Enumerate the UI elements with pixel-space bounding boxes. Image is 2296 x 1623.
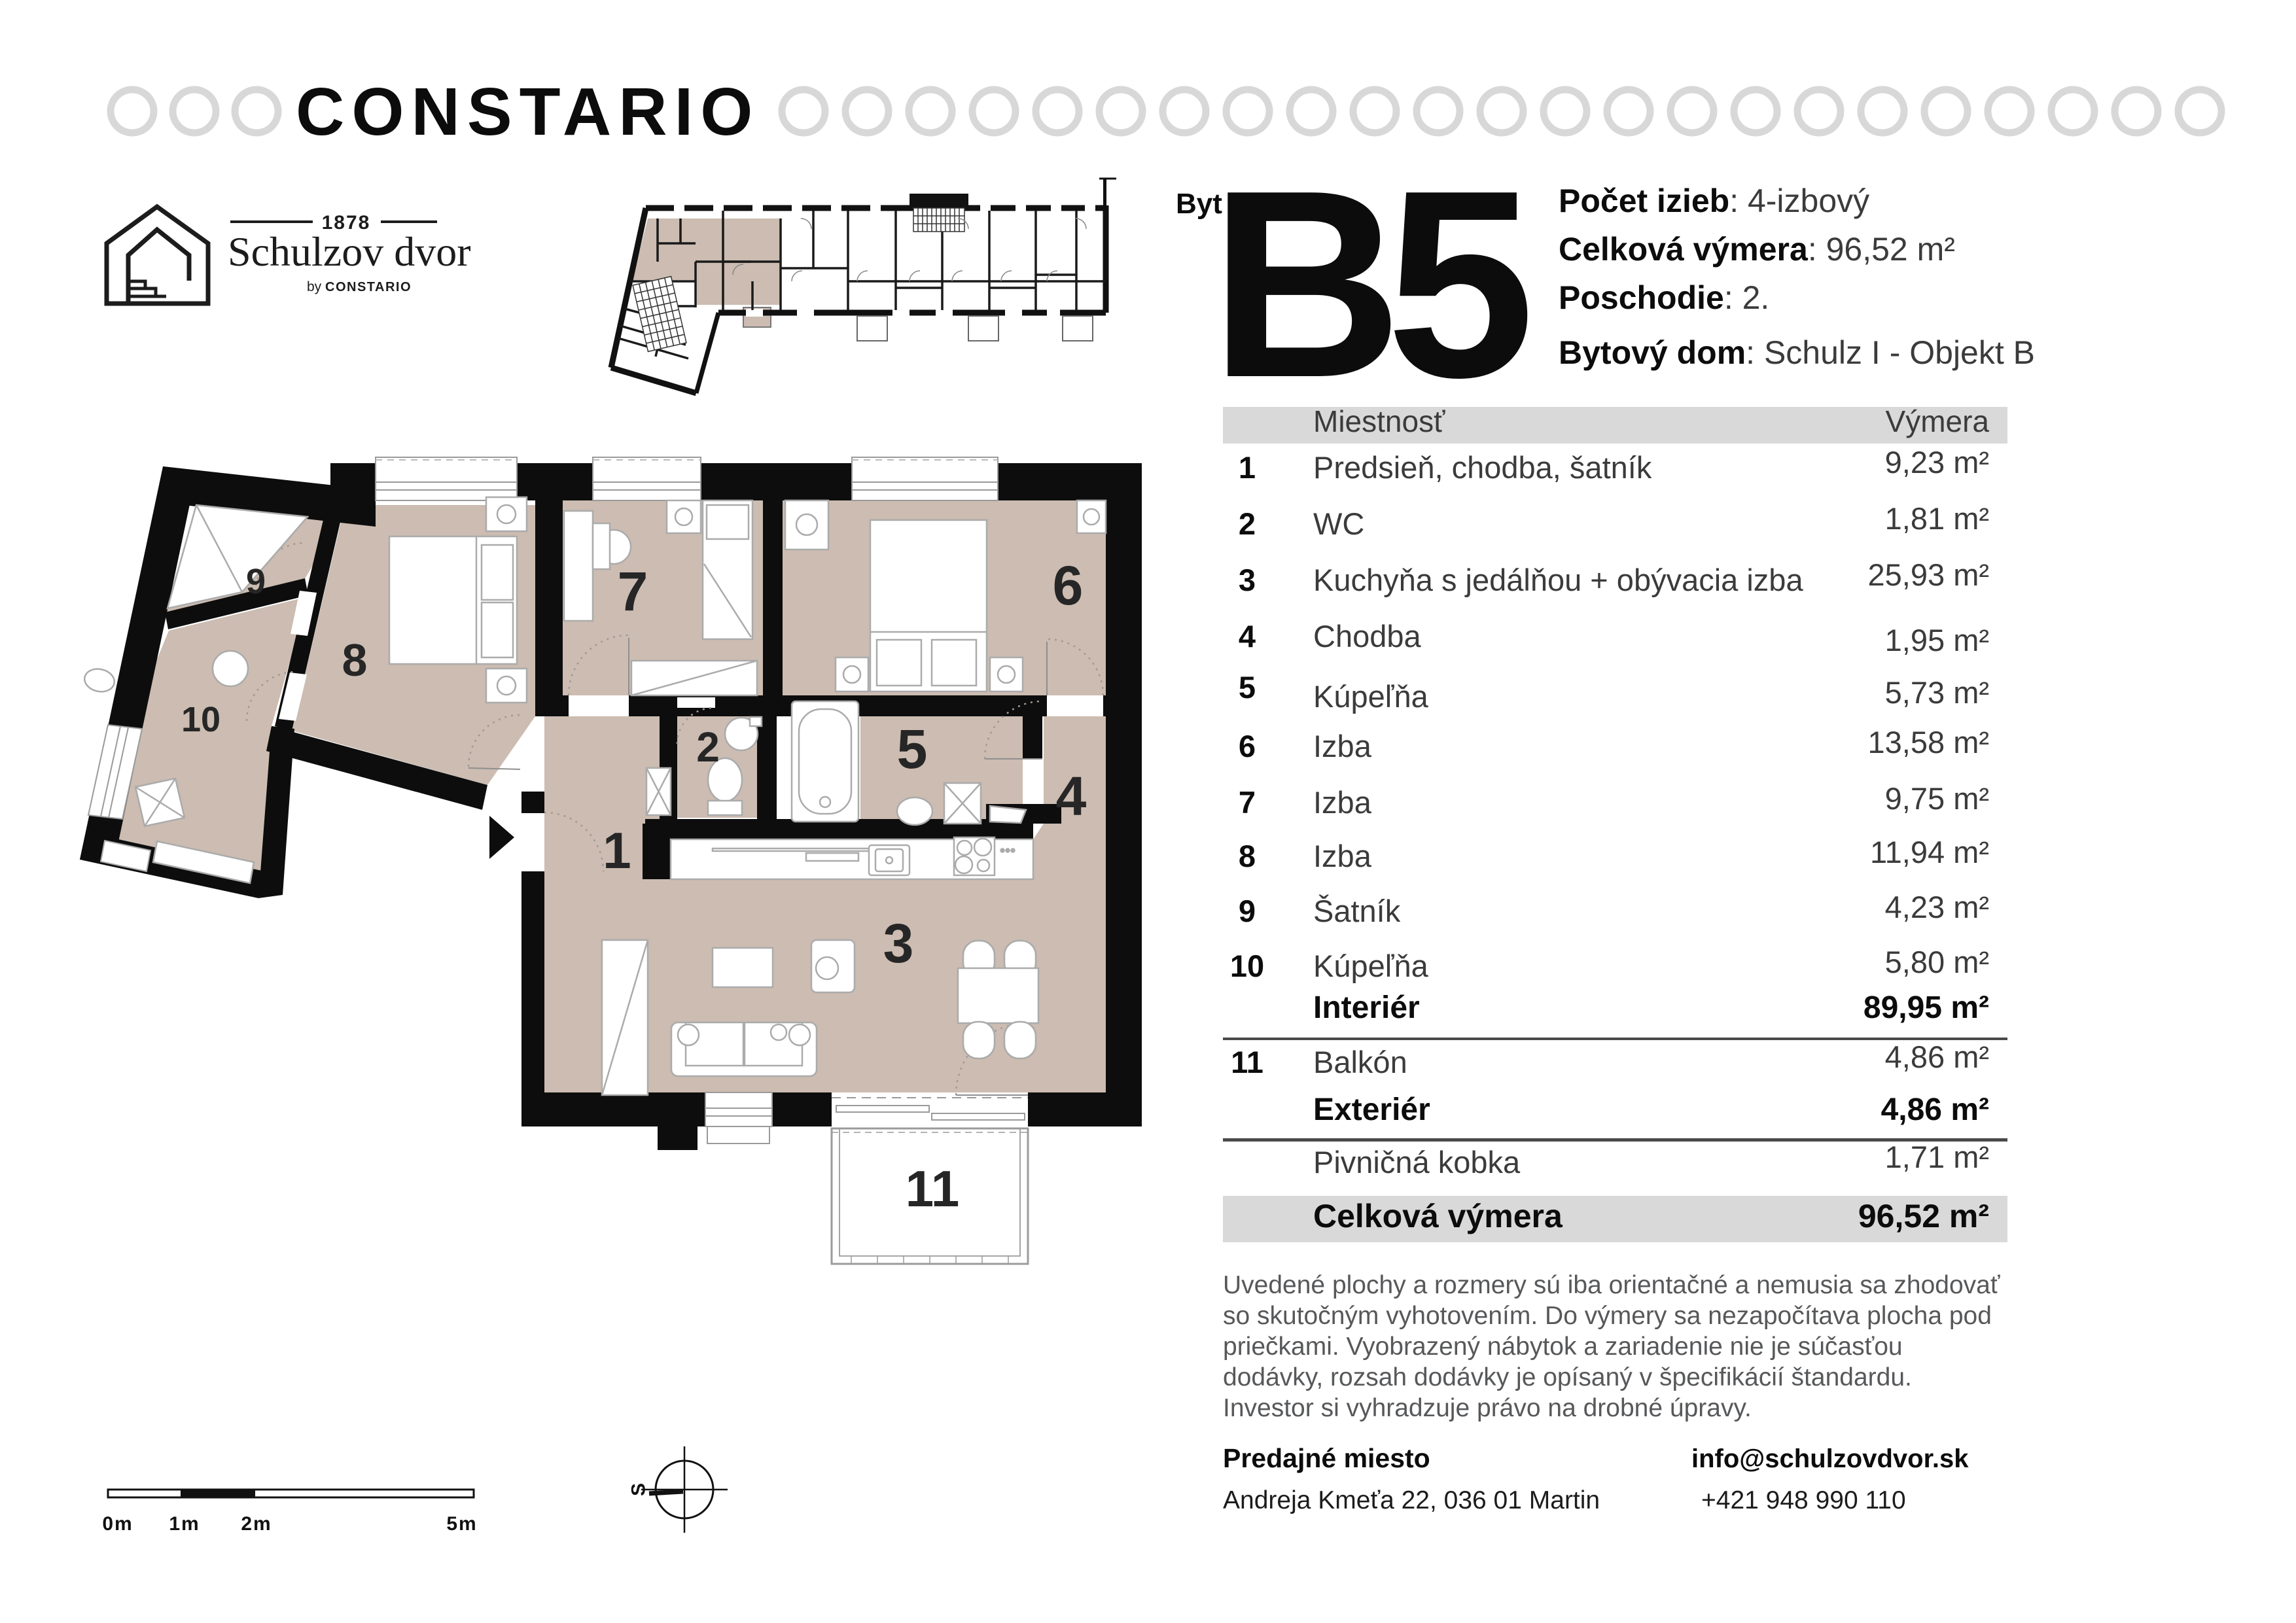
svg-text:Celková výmera: Celková výmera bbox=[1313, 1198, 1563, 1234]
svg-text:Poschodie: 2.: Poschodie: 2. bbox=[1559, 279, 1769, 316]
svg-text:Celková výmera: 96,52 m²: Celková výmera: 96,52 m² bbox=[1559, 231, 1955, 268]
svg-text:Balkón: Balkón bbox=[1313, 1045, 1407, 1079]
svg-text:8: 8 bbox=[342, 635, 368, 686]
svg-text:Investor si vyhradzuje právo n: Investor si vyhradzuje právo na drobné ú… bbox=[1223, 1394, 1752, 1422]
svg-text:7: 7 bbox=[1239, 785, 1256, 820]
svg-text:4,86 m²: 4,86 m² bbox=[1885, 1039, 1989, 1074]
svg-text:CONSTARIO: CONSTARIO bbox=[296, 74, 760, 149]
svg-text:1,71 m²: 1,71 m² bbox=[1885, 1140, 1989, 1174]
svg-text:Predsieň, chodba, šatník: Predsieň, chodba, šatník bbox=[1313, 450, 1652, 485]
svg-text:1: 1 bbox=[603, 822, 631, 879]
svg-text:dodávky, rozsah dodávky je opí: dodávky, rozsah dodávky je opísaný v špe… bbox=[1223, 1363, 1912, 1391]
svg-text:Šatník: Šatník bbox=[1313, 894, 1401, 928]
svg-text:Kuchyňa s jedálňou + obývacia: Kuchyňa s jedálňou + obývacia izba bbox=[1313, 563, 1803, 597]
svg-text:2: 2 bbox=[696, 724, 720, 771]
svg-text:11: 11 bbox=[906, 1160, 959, 1217]
svg-text:7: 7 bbox=[618, 561, 648, 622]
svg-text:5,80 m²: 5,80 m² bbox=[1885, 945, 1989, 979]
svg-text:11,94 m²: 11,94 m² bbox=[1870, 835, 1989, 869]
svg-text:3: 3 bbox=[883, 913, 914, 974]
svg-text:WC: WC bbox=[1313, 506, 1364, 541]
svg-text:Izba: Izba bbox=[1313, 839, 1372, 873]
svg-text:5,73 m²: 5,73 m² bbox=[1885, 675, 1989, 710]
svg-text:3: 3 bbox=[1239, 563, 1256, 597]
svg-text:Výmera: Výmera bbox=[1886, 404, 1990, 438]
svg-text:2: 2 bbox=[1239, 506, 1256, 541]
svg-text:Miestnosť: Miestnosť bbox=[1313, 404, 1445, 438]
svg-text:2m: 2m bbox=[241, 1513, 272, 1535]
svg-text:by CONSTARIO: by CONSTARIO bbox=[307, 279, 412, 294]
svg-text:B5: B5 bbox=[1210, 135, 1528, 433]
svg-text:8: 8 bbox=[1239, 839, 1256, 873]
svg-text:1: 1 bbox=[1239, 450, 1256, 485]
svg-text:Bytový dom: Schulz I - Objekt: Bytový dom: Schulz I - Objekt B bbox=[1559, 334, 2035, 371]
svg-text:Schulzov dvor: Schulzov dvor bbox=[228, 228, 471, 275]
svg-text:Andreja Kmeťa 22, 036 01 Marti: Andreja Kmeťa 22, 036 01 Martin bbox=[1223, 1486, 1600, 1514]
svg-text:9,75 m²: 9,75 m² bbox=[1885, 781, 1989, 816]
svg-text:4: 4 bbox=[1239, 619, 1256, 654]
svg-text:4: 4 bbox=[1056, 765, 1087, 827]
svg-text:Kúpeľňa: Kúpeľňa bbox=[1313, 949, 1429, 983]
svg-text:1m: 1m bbox=[169, 1513, 200, 1535]
svg-text:5m: 5m bbox=[446, 1513, 477, 1535]
svg-text:5: 5 bbox=[1239, 670, 1256, 705]
svg-text:S: S bbox=[628, 1483, 650, 1496]
svg-text:so skutočným vyhotovením. Do v: so skutočným vyhotovením. Do výmery sa n… bbox=[1223, 1302, 1992, 1330]
svg-text:Izba: Izba bbox=[1313, 729, 1372, 763]
svg-text:6: 6 bbox=[1053, 555, 1084, 616]
svg-text:Predajné miesto: Predajné miesto bbox=[1223, 1443, 1430, 1473]
svg-text:Pivničná kobka: Pivničná kobka bbox=[1313, 1145, 1521, 1179]
svg-text:Kúpeľňa: Kúpeľňa bbox=[1313, 679, 1429, 714]
svg-text:1,95 m²: 1,95 m² bbox=[1885, 623, 1989, 657]
svg-text:Interiér: Interiér bbox=[1313, 990, 1420, 1025]
svg-text:25,93 m²: 25,93 m² bbox=[1868, 557, 1989, 592]
svg-text:9: 9 bbox=[246, 562, 266, 601]
svg-text:9,23 m²: 9,23 m² bbox=[1885, 445, 1989, 480]
svg-text:6: 6 bbox=[1239, 729, 1256, 763]
svg-text:+421 948 990 110: +421 948 990 110 bbox=[1701, 1486, 1906, 1514]
svg-text:4,23 m²: 4,23 m² bbox=[1885, 890, 1989, 924]
svg-text:13,58 m²: 13,58 m² bbox=[1868, 725, 1989, 759]
svg-text:1,81 m²: 1,81 m² bbox=[1885, 501, 1989, 536]
svg-text:5: 5 bbox=[897, 718, 928, 780]
svg-text:Uvedené plochy a rozmery sú ib: Uvedené plochy a rozmery sú iba orientač… bbox=[1223, 1271, 2000, 1299]
svg-text:priečkami. Vyobrazený nábytok: priečkami. Vyobrazený nábytok a zariaden… bbox=[1223, 1333, 1903, 1361]
svg-text:Exteriér: Exteriér bbox=[1313, 1092, 1430, 1127]
svg-text:4,86 m²: 4,86 m² bbox=[1881, 1092, 1989, 1127]
svg-text:89,95 m²: 89,95 m² bbox=[1863, 990, 1989, 1025]
svg-text:info@schulzovdvor.sk: info@schulzovdvor.sk bbox=[1691, 1444, 1969, 1473]
svg-text:10: 10 bbox=[181, 700, 221, 739]
svg-text:Izba: Izba bbox=[1313, 785, 1372, 820]
svg-text:96,52 m²: 96,52 m² bbox=[1858, 1198, 1989, 1234]
svg-text:0m: 0m bbox=[102, 1513, 133, 1535]
svg-text:9: 9 bbox=[1239, 894, 1256, 928]
svg-text:10: 10 bbox=[1230, 949, 1264, 983]
svg-text:11: 11 bbox=[1231, 1045, 1263, 1079]
svg-text:Počet izieb: 4-izbový: Počet izieb: 4-izbový bbox=[1559, 183, 1869, 219]
svg-text:Chodba: Chodba bbox=[1313, 619, 1421, 654]
